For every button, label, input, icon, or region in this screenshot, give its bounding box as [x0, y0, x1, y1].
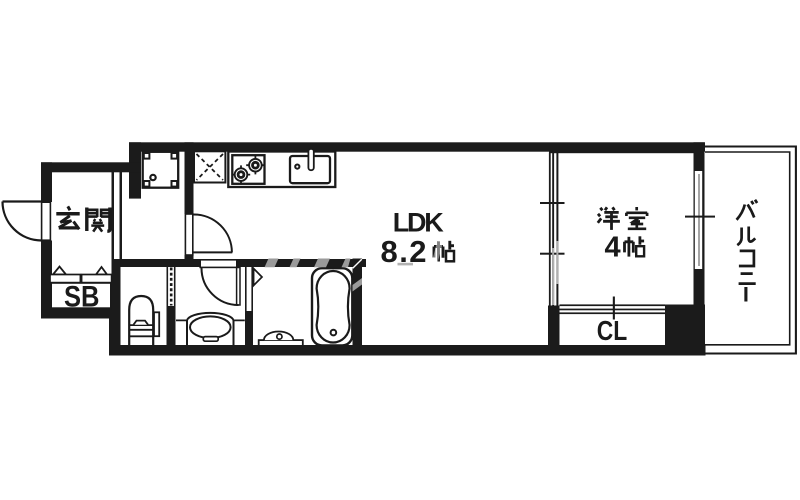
svg-text:4: 4 [605, 231, 621, 263]
svg-text:SB: SB [64, 281, 100, 314]
svg-text:CL: CL [597, 315, 628, 346]
svg-text:LDK: LDK [393, 207, 445, 237]
